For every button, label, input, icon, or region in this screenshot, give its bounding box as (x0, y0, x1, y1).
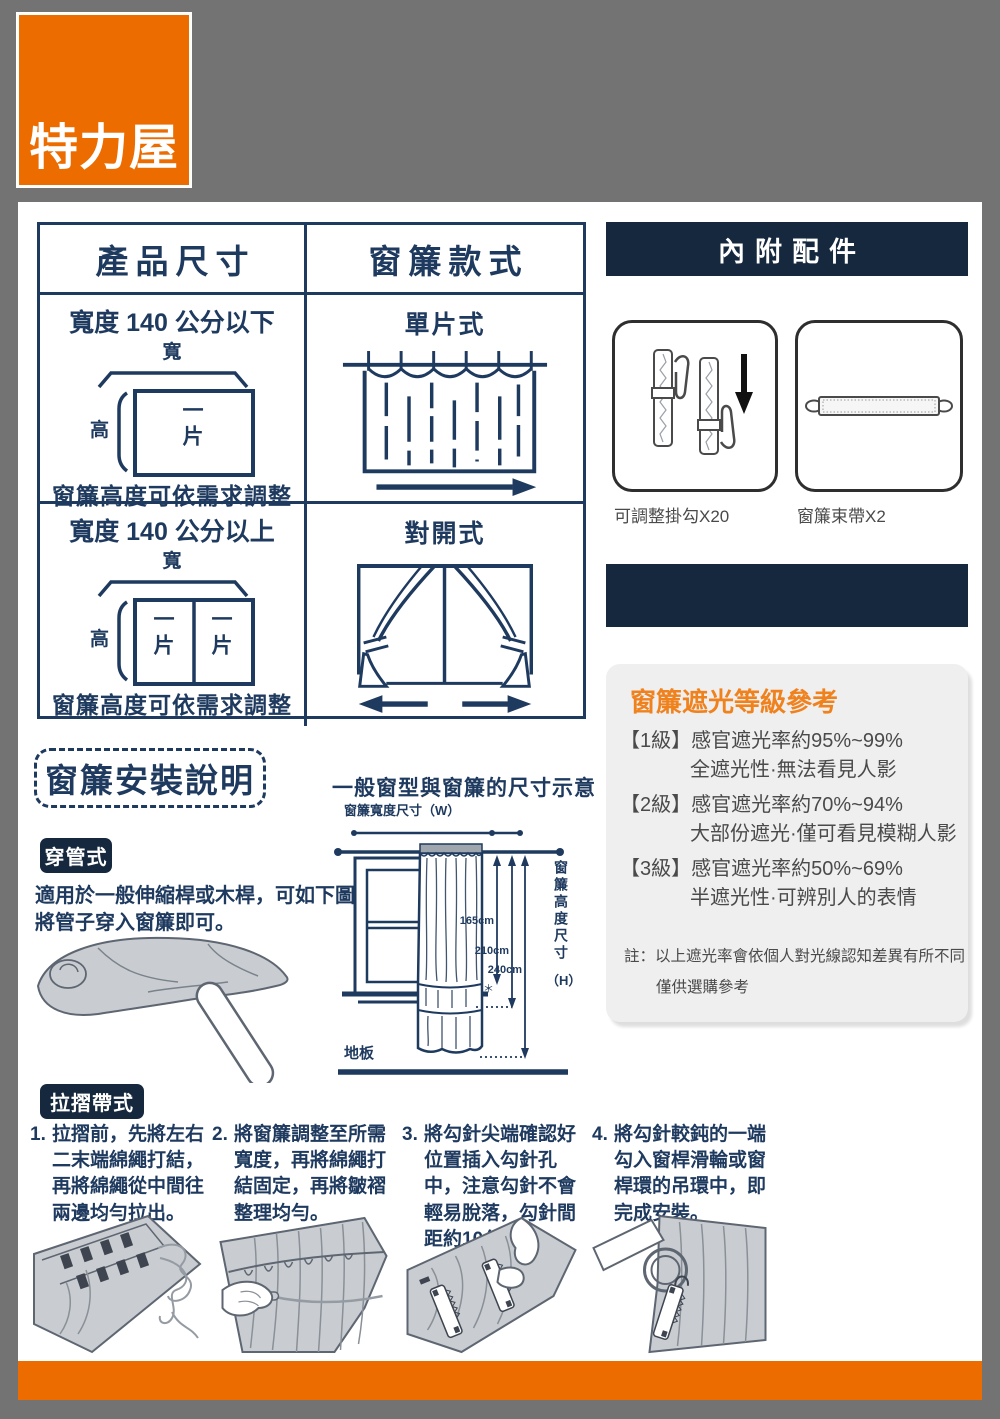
insert-hooks-icon (402, 1212, 580, 1357)
width-dimension-label: 窗簾寬度尺寸（W） (344, 800, 460, 819)
level-rate: 感官遮光率約70%~94% (691, 792, 903, 818)
measure-240: 240cm (486, 964, 522, 976)
rod-through-curtain-icon (28, 928, 348, 1083)
brand-logo: 特力屋 (16, 12, 192, 188)
style-cell-single: 單片式 (307, 295, 583, 504)
navy-banner (606, 564, 968, 627)
step-1-illustration (30, 1212, 205, 1357)
curtain-tieback-icon (803, 380, 955, 432)
width-height-diagram-single: 寬 高 一片 (77, 339, 267, 477)
blackout-panel: 窗簾遮光等級參考 【1級】 感官遮光率約95%~99% 全遮光性·無法看見人影 … (606, 664, 968, 1022)
size-caption: 窗簾高度可依需求調整 (52, 686, 292, 720)
size-title: 寬度 140 公分以上 (69, 512, 275, 548)
install-title-box: 窗簾安裝說明 (34, 748, 266, 808)
style-title-split: 對開式 (404, 514, 485, 550)
height-label: 高 (90, 624, 109, 651)
accessories-title: 內附配件 (708, 230, 866, 269)
width-label: 寬 (77, 337, 267, 364)
blackout-note-line1: 註：以上遮光率會依個人對光線認知差異有所不同 (624, 946, 965, 968)
install-title: 窗簾安裝說明 (45, 754, 255, 802)
level-desc: 全遮光性·無法看見人影 (620, 757, 962, 783)
size-cell-over-140: 寬度 140 公分以上 寬 高 一片 一片 窗簾高度可依需求調整 (40, 504, 307, 726)
blackout-title: 窗簾遮光等級參考 (630, 682, 838, 719)
rod-type-badge: 穿管式 (40, 838, 112, 873)
height-dimension-suffix: （H） (546, 970, 581, 989)
panel-label: 一片 (210, 608, 231, 660)
table-header-product-size: 產品尺寸 (40, 225, 307, 295)
blackout-level-2: 【2級】 感官遮光率約70%~94% 大部份遮光·僅可看見模糊人影 (620, 792, 962, 847)
blackout-level-3: 【3級】 感官遮光率約50%~69% 半遮光性·可辨別人的表情 (620, 856, 962, 911)
width-height-diagram-double: 寬 高 一片 一片 (77, 548, 267, 686)
single-panel-curtain-icon (339, 345, 551, 501)
panel-label: 一片 (152, 608, 173, 660)
pleat-type-badge: 拉摺帶式 (40, 1084, 144, 1119)
adjustable-curtain-hooks-icon (630, 338, 760, 474)
panel-label: 一片 (181, 399, 202, 451)
step-4-illustration (592, 1212, 770, 1357)
height-label: 高 (90, 415, 109, 442)
level-rate: 感官遮光率約95%~99% (691, 728, 903, 754)
accessory-tieback-label: 窗簾束帶X2 (797, 502, 886, 527)
style-title-single: 單片式 (404, 305, 485, 341)
level-grade: 【3級】 (620, 856, 691, 882)
width-label: 寬 (77, 546, 267, 573)
footer-orange-bar (18, 1361, 982, 1400)
level-grade: 【2級】 (620, 792, 691, 818)
table-header-curtain-style: 窗簾款式 (307, 225, 583, 295)
level-desc: 大部份遮光·僅可看見模糊人影 (620, 821, 962, 847)
accessory-tieback-box (795, 320, 963, 492)
flyer-page: 產品尺寸 窗簾款式 寬度 140 公分以下 寬 高 一片 窗簾高度可依需求調整 … (18, 202, 982, 1400)
step-2-illustration (212, 1212, 392, 1357)
size-cell-under-140: 寬度 140 公分以下 寬 高 一片 窗簾高度可依需求調整 (40, 295, 307, 504)
blackout-note-line2: 僅供選購參考 (624, 977, 965, 999)
window-size-diagram: 窗簾寬度尺寸（W） 165cm 210cm 240cm ＊ 窗簾高度尺寸 （H）… (330, 798, 595, 1090)
level-rate: 感官遮光率約50%~69% (691, 856, 903, 882)
brand-logo-text: 特力屋 (29, 108, 179, 179)
level-desc: 半遮光性·可辨別人的表情 (620, 885, 962, 911)
level-grade: 【1級】 (620, 728, 691, 754)
pull-cord-icon (212, 1212, 392, 1357)
step-3-illustration (402, 1212, 580, 1357)
pleat-type-badge-label: 拉摺帶式 (50, 1087, 134, 1116)
blackout-levels: 【1級】 感官遮光率約95%~99% 全遮光性·無法看見人影 【2級】 感官遮光… (620, 728, 962, 920)
tie-cords-icon (30, 1212, 205, 1357)
size-title: 寬度 140 公分以下 (69, 303, 275, 339)
split-curtain-icon (339, 556, 551, 718)
blackout-level-1: 【1級】 感官遮光率約95%~99% 全遮光性·無法看見人影 (620, 728, 962, 783)
rod-through-curtain-illustration (28, 928, 348, 1083)
accessories-title-bar: 內附配件 (606, 222, 968, 276)
floor-label: 地板 (344, 1042, 374, 1063)
accessory-hooks-label: 可調整掛勾X20 (614, 502, 729, 527)
measure-210: 210cm (473, 945, 509, 957)
height-dimension-label: 窗簾高度尺寸 (551, 860, 571, 962)
accessory-hooks-box (612, 320, 778, 492)
rod-type-badge-label: 穿管式 (45, 841, 108, 870)
measure-165: 165cm (458, 915, 494, 927)
blackout-note: 註：以上遮光率會依個人對光線認知差異有所不同 僅供選購參考 (624, 946, 965, 998)
style-cell-split: 對開式 (307, 504, 583, 726)
product-size-table: 產品尺寸 窗簾款式 寬度 140 公分以下 寬 高 一片 窗簾高度可依需求調整 … (37, 222, 586, 719)
star-mark: ＊ (483, 980, 494, 996)
hook-on-ring-icon (592, 1212, 770, 1357)
